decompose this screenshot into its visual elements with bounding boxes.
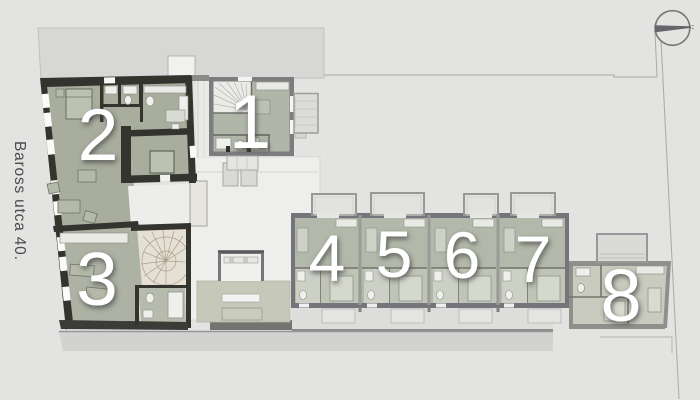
svg-text:6: 6	[444, 218, 481, 292]
svg-text:8: 8	[600, 254, 641, 337]
svg-text:5: 5	[376, 217, 413, 291]
svg-text:Baross utca 40.: Baross utca 40.	[11, 141, 28, 261]
svg-text:1: 1	[229, 80, 271, 165]
svg-text:7: 7	[515, 222, 552, 296]
svg-text:3: 3	[76, 237, 118, 321]
svg-text:2: 2	[78, 95, 119, 176]
svg-text:4: 4	[309, 221, 346, 295]
